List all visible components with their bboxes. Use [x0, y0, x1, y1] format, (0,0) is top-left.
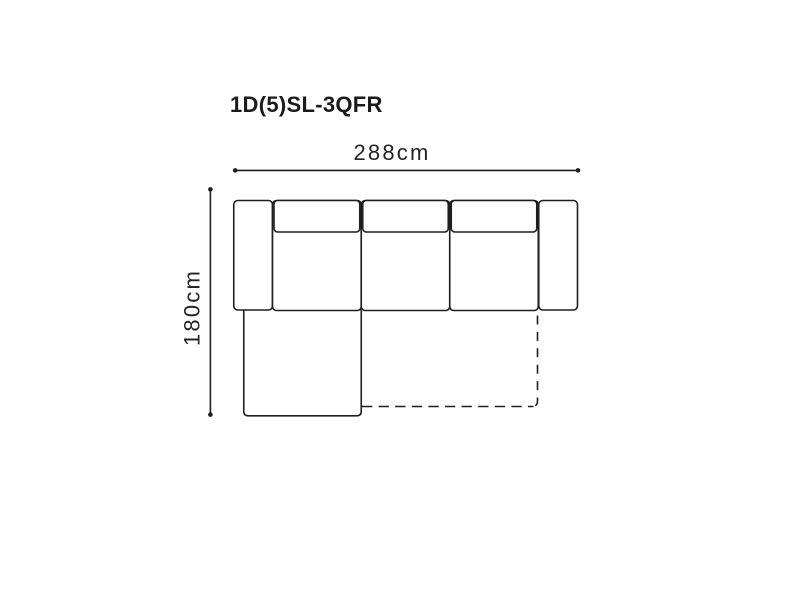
- svg-text:1D(5)SL-3QFR: 1D(5)SL-3QFR: [230, 92, 383, 117]
- svg-text:288cm: 288cm: [353, 140, 430, 165]
- svg-text:180cm: 180cm: [180, 269, 205, 346]
